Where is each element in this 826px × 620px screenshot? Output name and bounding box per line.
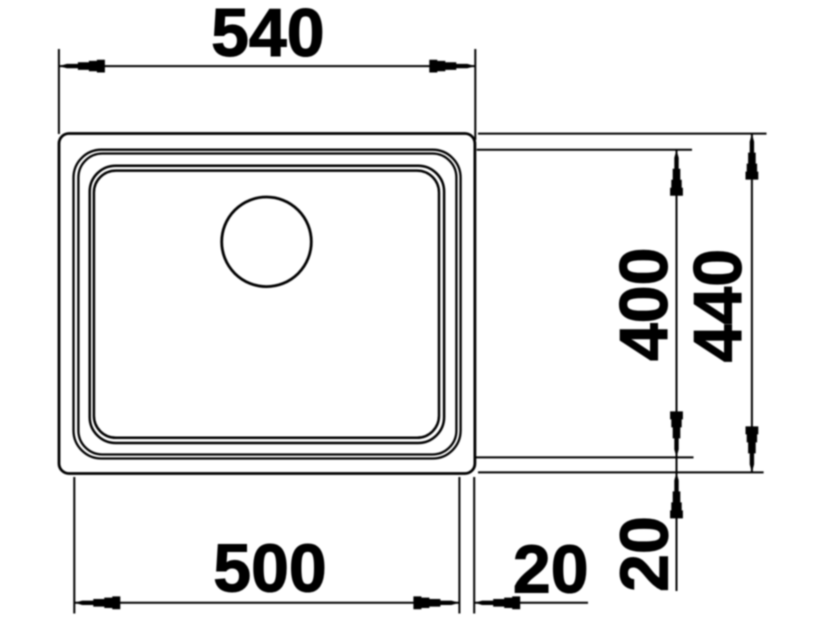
svg-text:500: 500 (213, 531, 326, 607)
svg-text:440: 440 (680, 249, 756, 362)
svg-text:540: 540 (211, 0, 324, 71)
svg-text:20: 20 (607, 516, 683, 592)
svg-text:400: 400 (606, 248, 682, 361)
svg-text:20: 20 (513, 532, 589, 608)
